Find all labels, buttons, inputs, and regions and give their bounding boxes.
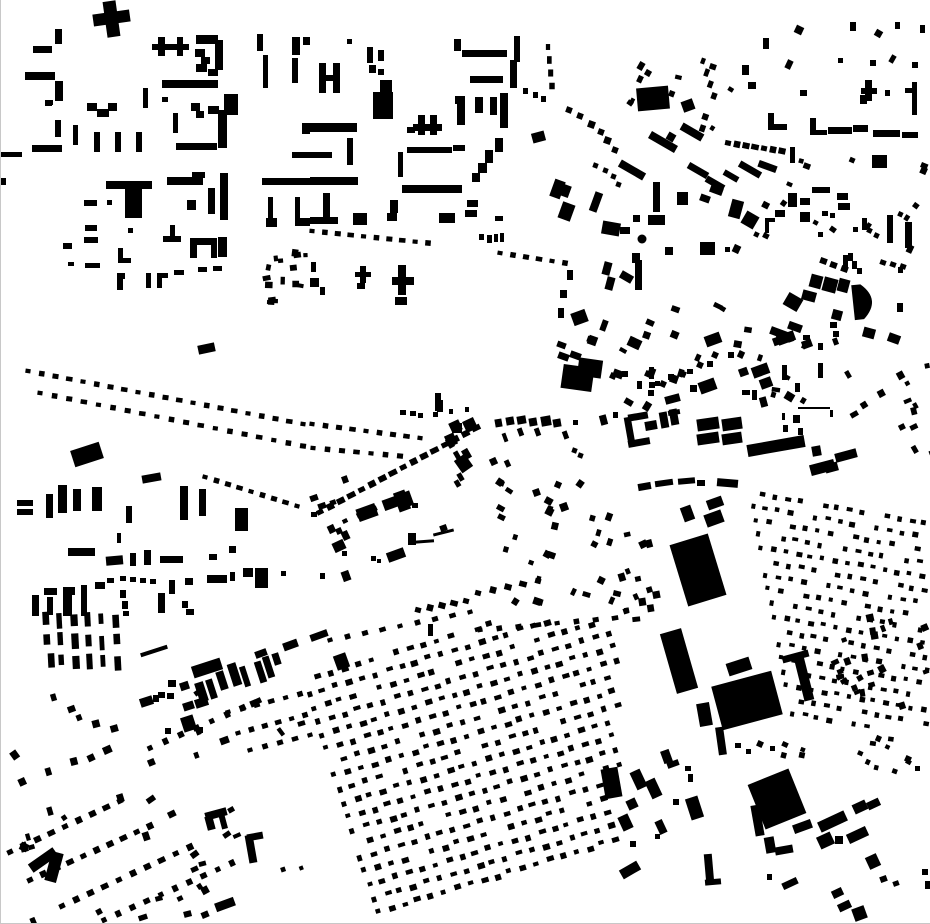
building-footprint — [818, 232, 823, 237]
building-footprint — [418, 413, 423, 418]
building-footprint — [516, 415, 526, 424]
building-footprint — [811, 445, 822, 456]
building-footprint — [48, 653, 55, 668]
building-footprint — [378, 50, 384, 61]
building-footprint — [285, 440, 291, 446]
building-footprint — [869, 627, 876, 635]
building-footprint — [818, 343, 823, 350]
building-footprint — [497, 250, 503, 255]
building-footprint — [887, 215, 893, 243]
building-footprint — [55, 120, 61, 137]
building-footprint — [94, 381, 100, 387]
building-footprint — [523, 88, 528, 94]
building-footprint — [541, 96, 546, 102]
building-footprint — [353, 449, 360, 454]
building-footprint — [510, 252, 516, 258]
building-footprint — [891, 676, 897, 682]
building-footprint — [478, 163, 487, 173]
building-footprint — [110, 405, 116, 411]
building-footprint — [52, 373, 59, 379]
building-footprint — [160, 556, 183, 563]
building-footprint — [310, 446, 316, 451]
building-footprint — [412, 503, 418, 508]
building-footprint — [902, 610, 908, 616]
building-footprint — [291, 249, 298, 257]
building-footprint — [117, 273, 125, 279]
building-footprint — [92, 487, 102, 511]
building-footprint — [848, 253, 853, 261]
building-footprint — [80, 399, 87, 405]
building-footprint — [165, 728, 171, 734]
building-footprint — [766, 218, 775, 222]
building-footprint — [174, 270, 184, 275]
building-footprint — [213, 426, 219, 431]
building-footprint — [208, 188, 215, 214]
building-footprint — [123, 611, 129, 616]
building-footprint — [648, 390, 654, 396]
building-footprint — [746, 749, 751, 754]
building-footprint — [909, 585, 914, 591]
building-footprint — [838, 203, 850, 210]
building-footprint — [180, 486, 188, 520]
building-footprint — [845, 561, 850, 566]
building-footprint — [652, 591, 661, 600]
building-footprint — [417, 436, 423, 441]
building-footprint — [862, 709, 868, 714]
building-footprint — [94, 132, 100, 152]
building-footprint — [99, 636, 105, 651]
building-footprint — [217, 405, 224, 411]
building-footprint — [347, 39, 352, 44]
building-footprint — [400, 410, 406, 415]
building-footprint — [108, 103, 117, 111]
building-footprint — [55, 81, 63, 101]
building-footprint — [290, 265, 297, 271]
building-footprint — [418, 115, 425, 135]
building-footprint — [292, 152, 310, 158]
building-footprint — [828, 127, 852, 134]
building-footprint — [37, 391, 43, 396]
building-footprint — [168, 416, 174, 422]
building-footprint — [120, 590, 126, 598]
building-footprint — [208, 69, 218, 76]
building-footprint — [439, 213, 455, 223]
building-footprint — [802, 525, 808, 531]
figure-ground-map — [0, 0, 930, 924]
building-footprint — [25, 369, 31, 374]
building-footprint — [796, 552, 803, 558]
building-footprint — [546, 44, 550, 50]
building-footprint — [68, 548, 95, 556]
building-footprint — [114, 656, 121, 671]
building-footprint — [271, 438, 277, 443]
building-footprint — [435, 393, 441, 411]
building-footprint — [98, 613, 103, 624]
building-footprint — [894, 570, 900, 576]
building-footprint — [158, 37, 165, 56]
building-footprint — [922, 869, 928, 875]
building-footprint — [33, 46, 52, 53]
building-footprint — [826, 583, 831, 589]
building-footprint — [904, 558, 909, 564]
building-footprint — [42, 612, 49, 625]
building-footprint — [835, 573, 841, 578]
building-footprint — [80, 379, 86, 384]
building-footprint — [788, 193, 797, 207]
building-footprint — [858, 630, 863, 635]
building-footprint — [412, 239, 417, 244]
building-footprint — [540, 415, 552, 427]
building-footprint — [833, 625, 838, 630]
building-footprint — [130, 553, 136, 566]
building-footprint — [143, 88, 148, 108]
building-footprint — [196, 64, 207, 72]
building-footprint — [797, 498, 803, 504]
building-footprint — [733, 140, 741, 148]
building-footprint — [58, 485, 67, 513]
building-footprint — [300, 422, 306, 427]
building-footprint — [457, 104, 465, 125]
building-footprint — [320, 287, 325, 295]
building-footprint — [783, 425, 788, 432]
building-footprint — [173, 113, 178, 133]
building-footprint — [876, 540, 881, 545]
building-footprint — [769, 146, 777, 154]
building-footprint — [925, 881, 930, 889]
building-footprint — [140, 578, 146, 583]
building-footprint — [635, 260, 642, 290]
building-footprint — [241, 431, 248, 437]
building-footprint — [813, 715, 818, 720]
building-footprint — [320, 573, 325, 579]
building-footprint — [818, 609, 824, 614]
building-footprint — [562, 260, 568, 266]
building-footprint — [335, 231, 341, 237]
building-footprint — [573, 618, 579, 624]
building-footprint — [874, 525, 879, 531]
building-footprint — [357, 283, 365, 289]
building-footprint — [803, 335, 810, 340]
building-footprint — [838, 58, 843, 63]
building-footprint — [144, 550, 151, 565]
building-footprint — [428, 624, 433, 636]
building-footprint — [860, 95, 867, 104]
building-footprint — [496, 625, 502, 631]
building-footprint — [407, 147, 452, 153]
building-footprint — [349, 426, 356, 432]
building-footprint — [113, 634, 120, 645]
building-footprint — [462, 50, 507, 57]
building-footprint — [479, 234, 484, 240]
building-footprint — [190, 238, 217, 245]
building-footprint — [859, 696, 865, 702]
building-footprint — [798, 428, 803, 435]
building-footprint — [347, 138, 353, 165]
building-footprint — [17, 509, 33, 515]
building-footprint — [268, 197, 273, 220]
building-footprint — [209, 554, 217, 560]
building-footprint — [402, 185, 462, 193]
building-footprint — [822, 211, 828, 216]
building-footprint — [799, 633, 804, 639]
building-footprint — [837, 193, 848, 200]
building-footprint — [190, 400, 196, 405]
building-footprint — [827, 531, 833, 537]
building-footprint — [895, 22, 900, 29]
building-footprint — [204, 402, 210, 408]
building-footprint — [452, 423, 462, 433]
building-footprint — [843, 255, 848, 267]
building-footprint — [371, 556, 376, 561]
building-footprint — [295, 218, 310, 226]
building-footprint — [776, 642, 781, 648]
building-footprint — [763, 573, 768, 579]
building-footprint — [796, 685, 802, 691]
building-footprint — [888, 736, 894, 741]
building-footprint — [84, 612, 91, 627]
building-footprint — [347, 232, 354, 237]
building-footprint — [638, 598, 646, 607]
building-footprint — [107, 578, 114, 583]
building-footprint — [130, 577, 136, 582]
building-footprint — [465, 407, 469, 412]
building-footprint — [259, 413, 265, 419]
building-footprint — [798, 752, 805, 759]
building-footprint — [815, 528, 820, 533]
building-footprint — [281, 571, 286, 576]
building-footprint — [32, 145, 62, 152]
building-footprint — [154, 414, 160, 419]
building-footprint — [495, 216, 503, 221]
building-footprint — [44, 588, 57, 595]
building-footprint — [220, 173, 228, 220]
building-footprint — [454, 39, 461, 51]
building-footprint — [908, 706, 913, 711]
building-footprint — [500, 233, 504, 242]
building-footprint — [830, 213, 835, 218]
building-footprint — [707, 361, 713, 367]
building-footprint — [158, 593, 165, 613]
building-footprint — [861, 653, 868, 661]
building-footprint — [231, 408, 238, 414]
building-footprint — [823, 636, 829, 642]
building-footprint — [801, 579, 808, 585]
building-footprint — [886, 648, 892, 654]
building-footprint — [257, 34, 263, 51]
building-footprint — [847, 574, 852, 580]
building-footprint — [851, 721, 856, 727]
building-footprint — [185, 578, 193, 585]
building-footprint — [528, 417, 537, 426]
building-footprint — [806, 673, 811, 679]
building-footprint — [97, 109, 109, 117]
building-footprint — [768, 124, 787, 130]
building-footprint — [177, 37, 183, 56]
building-footprint — [407, 127, 415, 133]
building-footprint — [196, 35, 218, 44]
building-footprint — [500, 93, 508, 128]
building-footprint — [838, 519, 843, 524]
building-footprint — [449, 409, 453, 414]
building-footprint — [73, 125, 78, 145]
building-footprint — [386, 236, 392, 242]
building-footprint — [554, 621, 560, 626]
building-footprint — [549, 83, 554, 90]
building-footprint — [876, 658, 883, 664]
building-footprint — [211, 245, 217, 258]
building-footprint — [800, 212, 810, 222]
building-footprint — [748, 82, 756, 89]
building-footprint — [118, 258, 131, 263]
building-footprint — [818, 363, 823, 378]
building-footprint — [390, 432, 397, 438]
building-footprint — [753, 518, 758, 523]
building-footprint — [912, 62, 918, 68]
building-footprint — [841, 600, 847, 606]
building-footprint — [425, 240, 431, 246]
building-footprint — [73, 489, 81, 511]
building-footprint — [885, 90, 890, 96]
building-footprint — [191, 103, 200, 111]
building-footprint — [549, 258, 555, 263]
building-footprint — [790, 711, 795, 717]
building-footprint — [665, 247, 673, 255]
building-footprint — [760, 491, 766, 496]
building-footprint — [653, 182, 660, 212]
building-footprint — [870, 697, 875, 702]
building-footprint — [905, 88, 912, 93]
building-footprint — [17, 500, 33, 506]
building-footprint — [820, 555, 825, 560]
building-footprint — [63, 243, 72, 249]
building-footprint — [833, 331, 839, 337]
building-footprint — [399, 238, 406, 243]
building-footprint — [784, 615, 790, 621]
building-footprint — [685, 766, 691, 771]
building-footprint — [870, 60, 876, 66]
building-footprint — [85, 263, 100, 268]
building-footprint — [613, 412, 618, 418]
building-footprint — [923, 721, 929, 726]
building-footprint — [905, 222, 912, 248]
building-footprint — [87, 103, 97, 111]
building-footprint — [43, 634, 50, 645]
building-footprint — [256, 434, 263, 440]
building-footprint — [310, 217, 338, 224]
building-footprint — [490, 97, 497, 115]
building-footprint — [186, 609, 194, 615]
building-footprint — [788, 576, 793, 581]
building-footprint — [830, 322, 837, 328]
building-footprint — [176, 143, 217, 150]
building-footprint — [197, 423, 204, 429]
building-footprint — [800, 198, 810, 205]
building-footprint — [836, 706, 842, 712]
building-footprint-round — [638, 235, 647, 244]
building-footprint — [71, 633, 79, 649]
building-footprint — [921, 706, 927, 712]
building-footprint — [814, 648, 821, 654]
building-footprint — [273, 255, 278, 261]
building-footprint — [637, 381, 642, 389]
building-footprint — [227, 428, 233, 434]
building-footprint — [547, 56, 552, 64]
building-footprint — [300, 443, 307, 449]
building-footprint — [838, 652, 843, 658]
building-footprint — [636, 86, 670, 112]
building-footprint — [802, 646, 807, 651]
building-footprint — [856, 615, 861, 621]
building-footprint — [266, 218, 277, 227]
building-footprint — [100, 655, 105, 667]
building-footprint — [68, 262, 74, 266]
building-footprint — [213, 266, 222, 271]
building-footprint — [168, 680, 176, 687]
building-footprint — [117, 533, 121, 543]
building-footprint — [207, 575, 227, 583]
building-footprint — [872, 155, 887, 168]
building-footprint — [162, 80, 218, 88]
building-footprint — [810, 130, 827, 135]
building-footprint — [775, 507, 780, 512]
building-footprint — [494, 234, 498, 242]
building-footprint — [245, 411, 251, 416]
building-footprint — [924, 363, 930, 369]
building-footprint — [864, 537, 870, 543]
building-footprint — [842, 546, 847, 552]
building-footprint — [809, 688, 814, 693]
building-footprint — [783, 549, 788, 554]
building-footprint — [880, 619, 886, 624]
building-footprint — [85, 225, 97, 231]
building-footprint — [577, 357, 603, 378]
building-footprint — [787, 510, 794, 516]
building-footprint — [136, 132, 142, 152]
building-footprint — [912, 531, 919, 537]
building-footprint — [72, 656, 80, 669]
building-footprint — [821, 690, 828, 696]
building-footprint — [700, 242, 715, 255]
building-footprint — [560, 290, 567, 298]
building-footprint — [176, 397, 183, 403]
building-footprint — [149, 392, 155, 398]
building-footprint — [303, 253, 307, 257]
building-footprint — [162, 97, 168, 102]
building-footprint — [899, 531, 904, 536]
building-footprint — [430, 115, 437, 135]
building-footprint — [25, 72, 55, 80]
building-footprint — [573, 420, 578, 425]
building-footprint — [861, 643, 866, 649]
building-footprint — [376, 430, 382, 436]
building-footprint — [853, 227, 858, 232]
building-footprint — [846, 627, 852, 633]
building-footprint — [767, 874, 772, 880]
building-footprint — [107, 384, 114, 390]
building-footprint — [832, 558, 838, 564]
building-footprint — [514, 36, 520, 62]
building-footprint — [121, 387, 128, 393]
building-footprint — [58, 654, 64, 665]
building-footprint — [336, 425, 343, 431]
building-footprint — [889, 541, 895, 547]
building-footprint — [377, 559, 381, 563]
building-footprint — [677, 192, 688, 205]
building-footprint — [648, 215, 665, 225]
building-footprint — [793, 604, 798, 610]
building-footprint — [890, 609, 895, 614]
building-footprint — [47, 100, 53, 105]
